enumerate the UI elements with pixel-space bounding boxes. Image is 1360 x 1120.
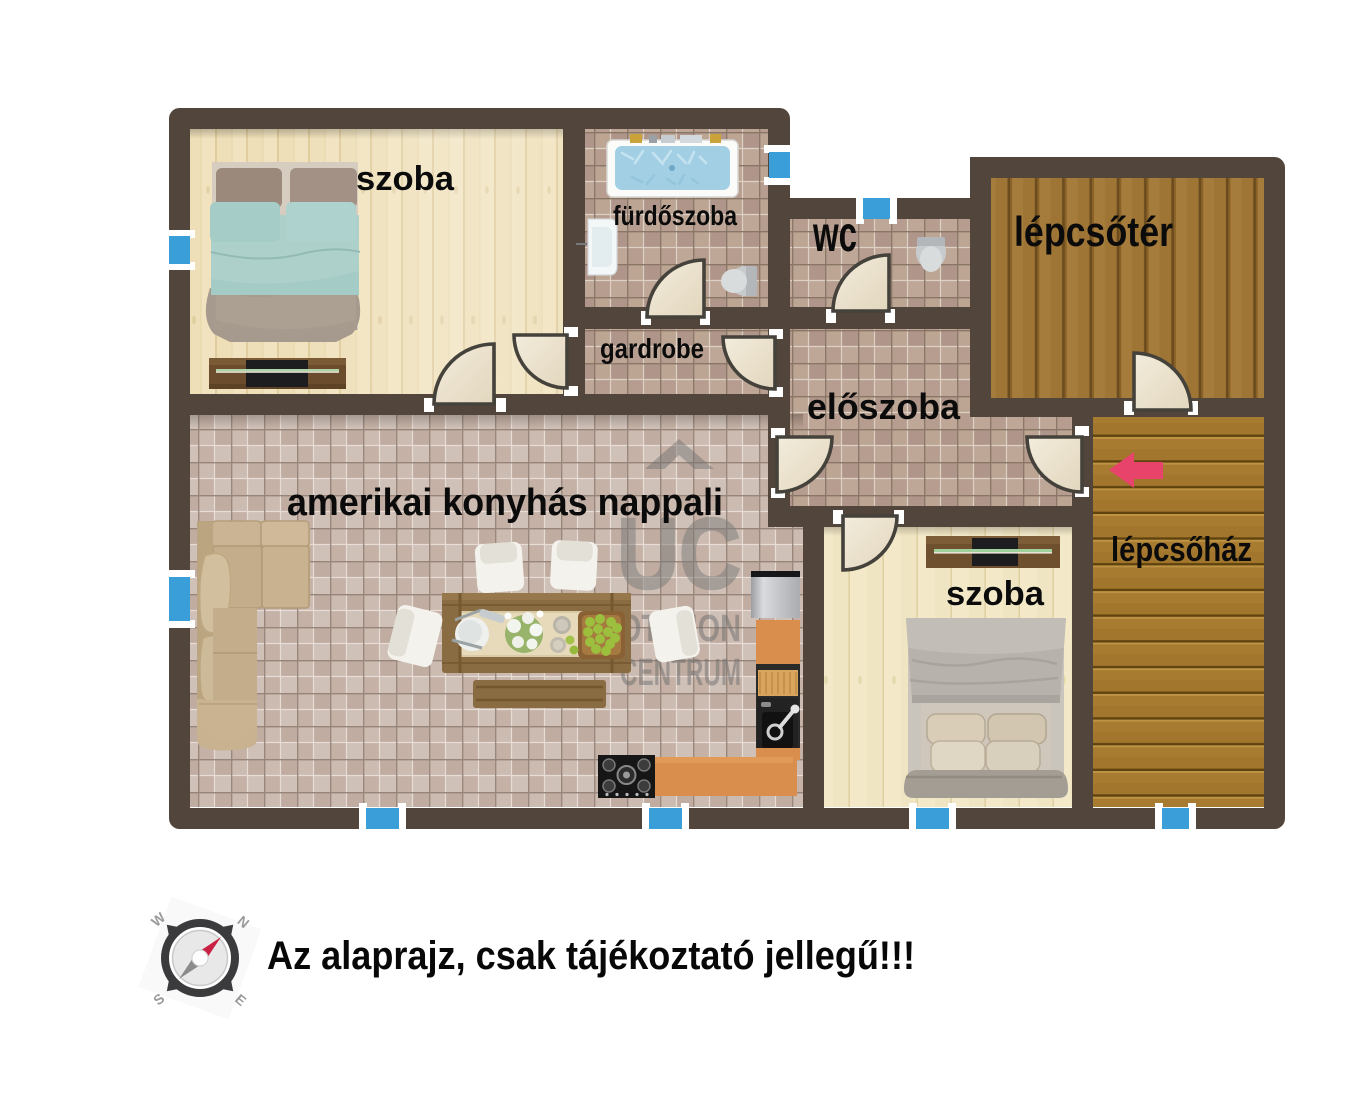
svg-text:Az alaprajz, csak tájékoztató: Az alaprajz, csak tájékoztató jellegű!!! — [267, 934, 915, 978]
svg-text:előszoba: előszoba — [807, 386, 961, 427]
svg-text:gardrobe: gardrobe — [600, 333, 704, 364]
svg-text:lépcsőház: lépcsőház — [1111, 531, 1252, 569]
svg-text:szoba: szoba — [946, 575, 1045, 613]
svg-text:szoba: szoba — [356, 160, 455, 198]
svg-text:wc: wc — [812, 206, 857, 262]
svg-text:amerikai konyhás nappali: amerikai konyhás nappali — [287, 482, 723, 524]
svg-text:lépcsőtér: lépcsőtér — [1014, 208, 1173, 255]
svg-text:fürdőszoba: fürdőszoba — [613, 200, 737, 231]
